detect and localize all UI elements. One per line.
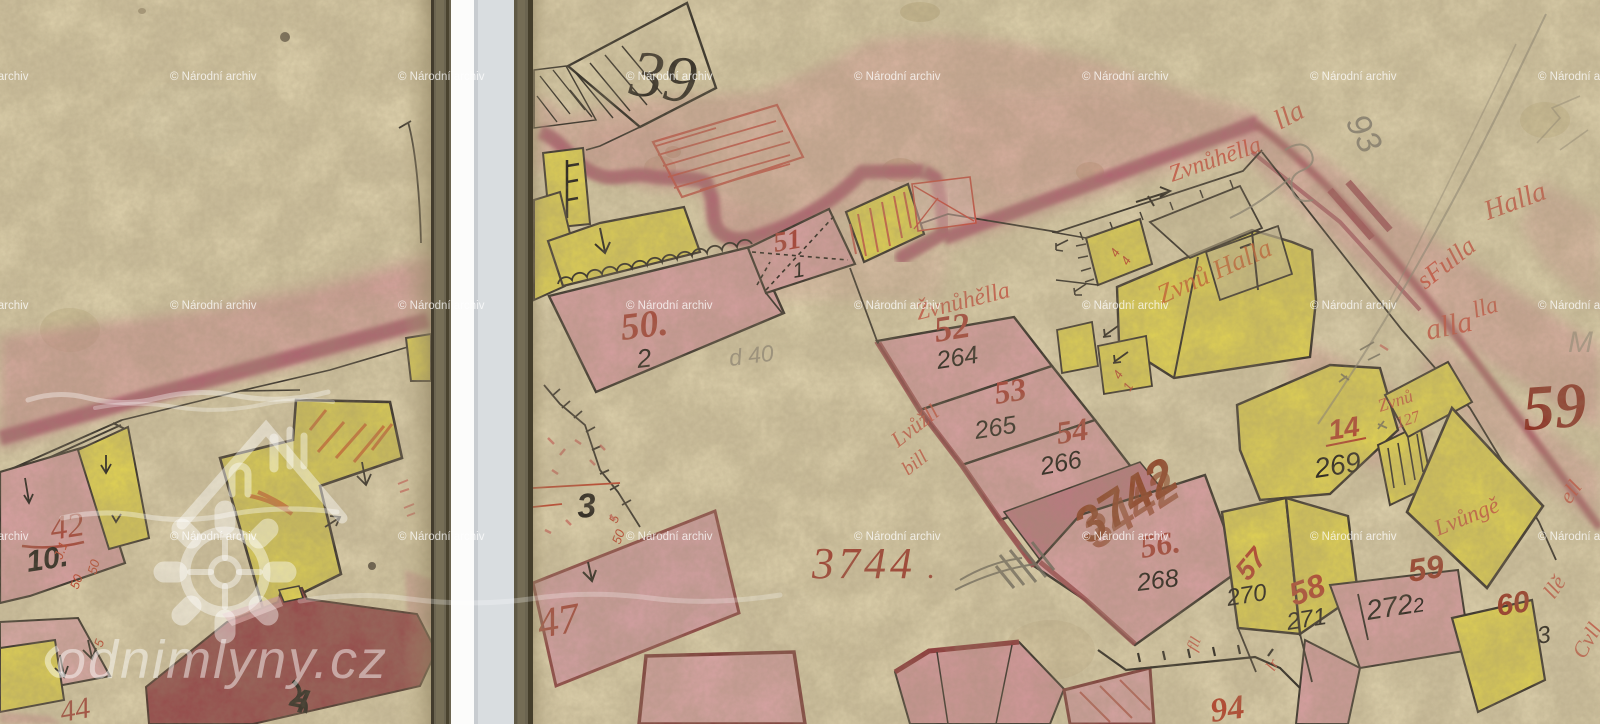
svg-text:odnimlyny.cz: odnimlyny.cz xyxy=(56,630,388,690)
svg-text:© Národní archiv: © Národní archiv xyxy=(1082,71,1169,83)
svg-text:© Národní archiv: © Národní archiv xyxy=(0,300,29,312)
svg-text:© Národní archiv: © Národní archiv xyxy=(0,531,29,543)
svg-text:© Národní archiv: © Národní archiv xyxy=(626,531,713,543)
svg-text:© Národní archiv: © Národní archiv xyxy=(1538,71,1600,83)
svg-text:© Národní archiv: © Národní archiv xyxy=(1082,531,1169,543)
svg-text:© Národní archiv: © Národní archiv xyxy=(1538,300,1600,312)
svg-text:© Národní archiv: © Národní archiv xyxy=(1310,531,1397,543)
svg-text:© Národní archiv: © Národní archiv xyxy=(854,300,941,312)
svg-text:© Národní archiv: © Národní archiv xyxy=(170,300,257,312)
svg-text:© Národní archiv: © Národní archiv xyxy=(398,300,485,312)
svg-text:© Národní archiv: © Národní archiv xyxy=(1538,531,1600,543)
svg-text:© Národní archiv: © Národní archiv xyxy=(1082,300,1169,312)
svg-text:© Národní archiv: © Národní archiv xyxy=(398,531,485,543)
svg-text:© Národní archiv: © Národní archiv xyxy=(398,71,485,83)
svg-text:© Národní archiv: © Národní archiv xyxy=(854,531,941,543)
svg-text:© Národní archiv: © Národní archiv xyxy=(626,71,713,83)
svg-text:© Národní archiv: © Národní archiv xyxy=(170,71,257,83)
svg-text:© Národní archiv: © Národní archiv xyxy=(0,71,29,83)
svg-text:© Národní archiv: © Národní archiv xyxy=(1310,71,1397,83)
svg-text:© Národní archiv: © Národní archiv xyxy=(626,300,713,312)
svg-text:© Národní archiv: © Národní archiv xyxy=(854,71,941,83)
svg-text:© Národní archiv: © Národní archiv xyxy=(1310,300,1397,312)
